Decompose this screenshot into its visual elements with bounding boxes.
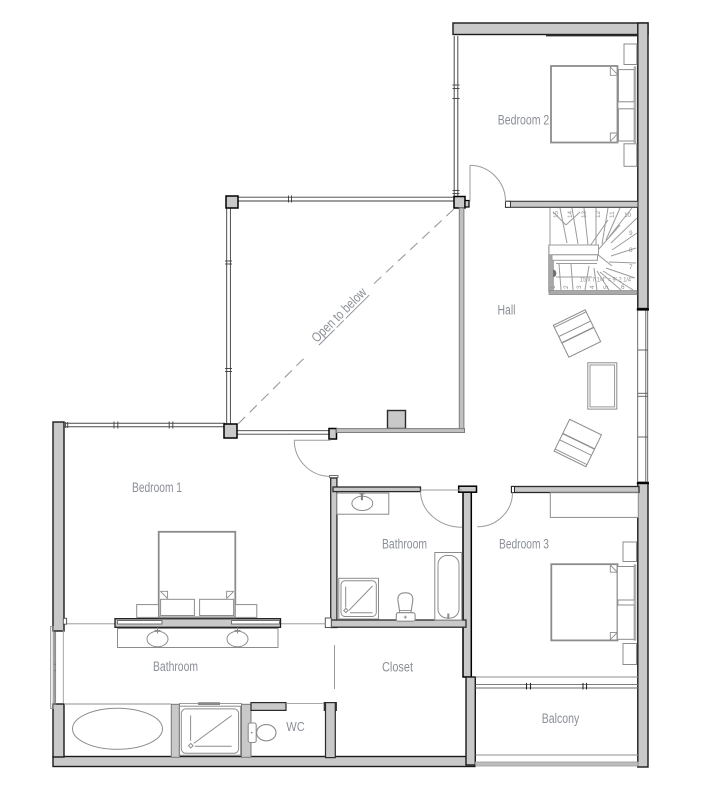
svg-text:2: 2	[563, 285, 570, 289]
svg-text:14: 14	[567, 210, 574, 218]
svg-text:9: 9	[629, 230, 633, 237]
svg-text:13: 13	[581, 210, 588, 218]
svg-text:3: 3	[576, 285, 583, 289]
svg-text:Bedroom 3: Bedroom 3	[499, 537, 549, 552]
svg-text:Bedroom 1: Bedroom 1	[132, 480, 182, 495]
svg-text:1: 1	[550, 285, 557, 289]
svg-text:15 x 7 1/4" = 9'-2 1/4": 15 x 7 1/4" = 9'-2 1/4"	[580, 277, 633, 284]
svg-text:Bedroom 2: Bedroom 2	[498, 113, 550, 128]
svg-text:15: 15	[553, 210, 560, 218]
svg-text:Bathroom: Bathroom	[382, 537, 427, 552]
svg-text:6: 6	[621, 284, 625, 291]
svg-text:Bathroom: Bathroom	[153, 659, 198, 674]
svg-text:Balcony: Balcony	[542, 711, 580, 726]
svg-text:WC: WC	[286, 719, 305, 734]
svg-text:8: 8	[629, 247, 633, 254]
svg-text:4: 4	[589, 285, 596, 289]
svg-text:12: 12	[595, 210, 602, 218]
svg-text:Closet: Closet	[382, 660, 413, 675]
svg-text:10: 10	[624, 212, 632, 219]
svg-text:11: 11	[609, 211, 616, 218]
svg-text:7: 7	[629, 264, 633, 271]
svg-text:Hall: Hall	[498, 303, 516, 318]
svg-text:5: 5	[603, 285, 610, 289]
